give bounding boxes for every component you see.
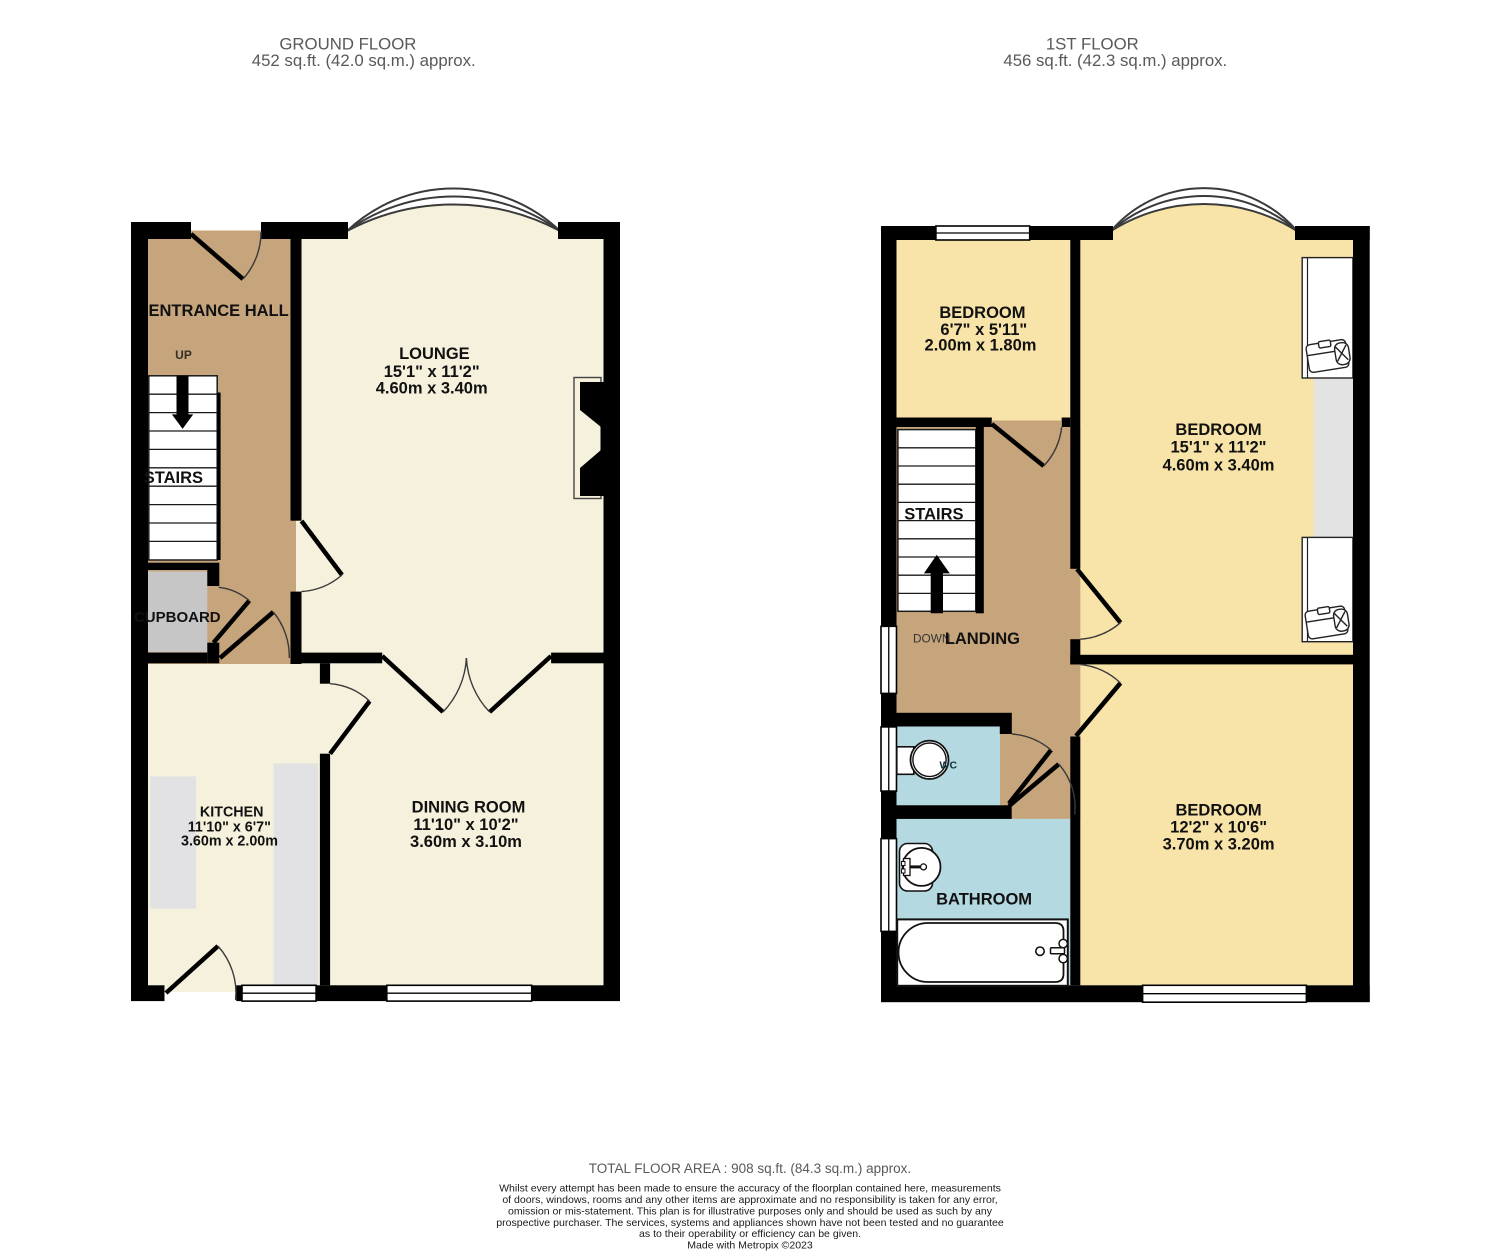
- svg-text:452 sq.ft. (42.0 sq.m.) approx: 452 sq.ft. (42.0 sq.m.) approx.: [252, 51, 476, 70]
- svg-text:3.60m x 2.00m: 3.60m x 2.00m: [181, 834, 278, 850]
- svg-text:STAIRS: STAIRS: [904, 506, 963, 524]
- svg-text:BATHROOM: BATHROOM: [936, 891, 1032, 909]
- svg-text:of doors, windows, rooms and a: of doors, windows, rooms and any other i…: [502, 1194, 997, 1206]
- svg-text:456 sq.ft. (42.3 sq.m.) approx: 456 sq.ft. (42.3 sq.m.) approx.: [1003, 51, 1227, 70]
- svg-text:TOTAL FLOOR AREA : 908 sq.ft.: TOTAL FLOOR AREA : 908 sq.ft. (84.3 sq.m…: [589, 1161, 911, 1176]
- svg-text:BEDROOM: BEDROOM: [1176, 801, 1262, 819]
- svg-text:3.70m x 3.20m: 3.70m x 3.20m: [1163, 836, 1275, 854]
- svg-text:4.60m x 3.40m: 4.60m x 3.40m: [1163, 456, 1275, 474]
- svg-text:4.60m x 3.40m: 4.60m x 3.40m: [376, 380, 488, 398]
- svg-text:LOUNGE: LOUNGE: [399, 345, 470, 363]
- svg-text:omission or mis-statement. Thi: omission or mis-statement. This plan is …: [508, 1205, 993, 1217]
- svg-text:2.00m x 1.80m: 2.00m x 1.80m: [925, 336, 1037, 354]
- svg-text:ENTRANCE HALL: ENTRANCE HALL: [148, 302, 288, 320]
- svg-text:BEDROOM: BEDROOM: [1175, 421, 1261, 439]
- svg-text:15'1" x 11'2": 15'1" x 11'2": [384, 363, 480, 381]
- svg-text:as to their operability or eff: as to their operability or efficiency ca…: [639, 1228, 861, 1240]
- svg-text:BEDROOM: BEDROOM: [939, 304, 1025, 322]
- svg-text:Made with Metropix ©2023: Made with Metropix ©2023: [687, 1239, 813, 1251]
- svg-text:15'1" x 11'2": 15'1" x 11'2": [1171, 439, 1267, 457]
- svg-text:CUPBOARD: CUPBOARD: [134, 609, 221, 626]
- svg-text:12'2" x 10'6": 12'2" x 10'6": [1170, 818, 1267, 836]
- svg-text:Whilst every attempt has been: Whilst every attempt has been made to en…: [499, 1183, 1001, 1195]
- svg-text:UP: UP: [175, 348, 192, 362]
- svg-text:DINING ROOM: DINING ROOM: [412, 799, 526, 817]
- svg-text:3.60m x 3.10m: 3.60m x 3.10m: [410, 833, 522, 851]
- svg-text:LANDING: LANDING: [945, 630, 1020, 648]
- svg-text:WC: WC: [940, 760, 958, 772]
- svg-text:KITCHEN: KITCHEN: [200, 804, 264, 820]
- svg-text:prospective purchaser. The ser: prospective purchaser. The services, sys…: [496, 1217, 1004, 1229]
- svg-text:11'10" x 10'2": 11'10" x 10'2": [413, 816, 518, 834]
- svg-text:STAIRS: STAIRS: [144, 469, 203, 487]
